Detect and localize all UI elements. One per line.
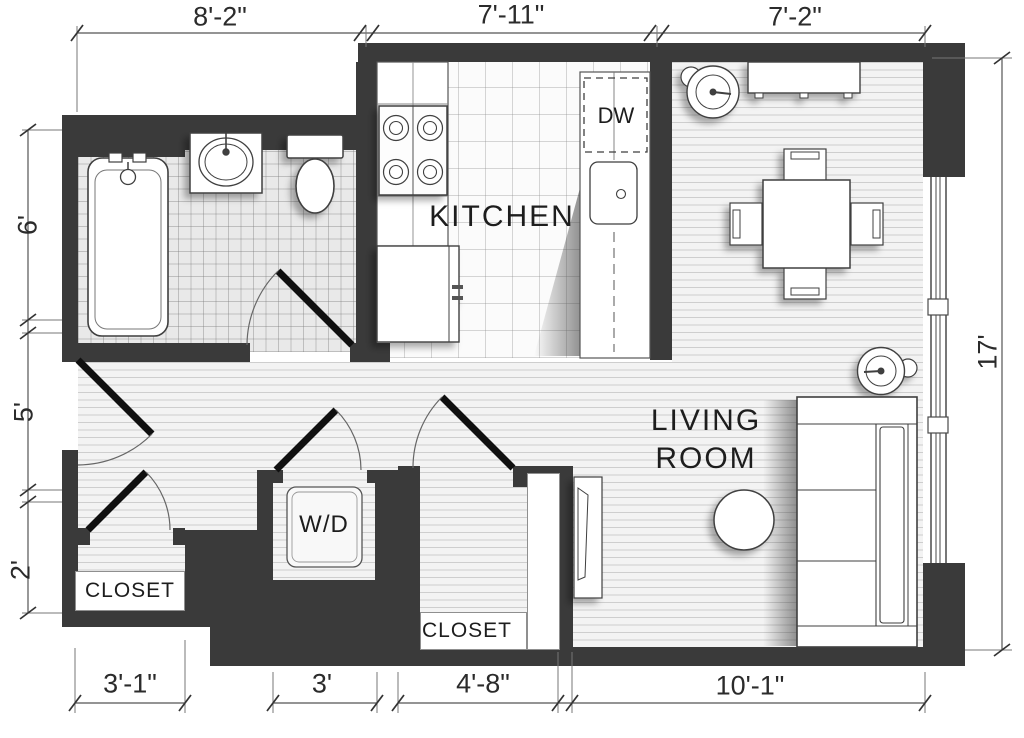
refrigerator: [377, 246, 463, 342]
dim-bottom-1: 3'-1": [103, 669, 157, 700]
bathroom-door: [247, 271, 352, 345]
closet-left-door: [88, 472, 170, 530]
closet-center-door: [413, 397, 513, 468]
washer-dryer-label: W/D: [299, 511, 349, 539]
floor-plan: 8'-2" 7'-11" 7'-2" 6' 5' 2' 17' 3'-1" 3'…: [0, 0, 1024, 738]
sideboard: [748, 62, 860, 98]
living-room-label-line2: ROOM: [655, 442, 756, 476]
dim-top-1: 8'-2": [193, 2, 247, 33]
tv-console: [574, 477, 602, 598]
closet-left-label: CLOSET: [85, 579, 175, 603]
dim-bottom-3: 4'-8": [456, 669, 510, 700]
kitchen-sink: [590, 162, 637, 224]
living-room-label-line1: LIVING: [651, 404, 761, 438]
plant-side: [858, 348, 918, 395]
stove: [379, 106, 447, 195]
dim-bottom-2: 3': [312, 669, 332, 700]
window: [923, 177, 965, 563]
kitchen-label: KITCHEN: [429, 200, 575, 234]
sofa: [797, 397, 917, 647]
closet-center-label: CLOSET: [422, 619, 512, 643]
round-side-table: [714, 490, 774, 550]
bathroom-sink: [190, 133, 262, 193]
entry-door: [78, 360, 152, 465]
dining-set: [730, 149, 883, 299]
bathtub: [88, 153, 168, 336]
dim-bottom-4: 10'-1": [716, 671, 785, 702]
wd-closet-door: [276, 410, 361, 470]
dim-top-2: 7'-11": [478, 0, 545, 31]
plant-top: [681, 66, 739, 118]
dishwasher-label: DW: [598, 103, 635, 129]
dim-left-3: 2': [6, 560, 37, 580]
toilet: [287, 135, 343, 213]
dim-left-1: 6': [13, 215, 44, 235]
dim-top-3: 7'-2": [768, 2, 822, 33]
dim-right-1: 17': [973, 334, 1004, 369]
dim-left-2: 5': [9, 402, 40, 422]
